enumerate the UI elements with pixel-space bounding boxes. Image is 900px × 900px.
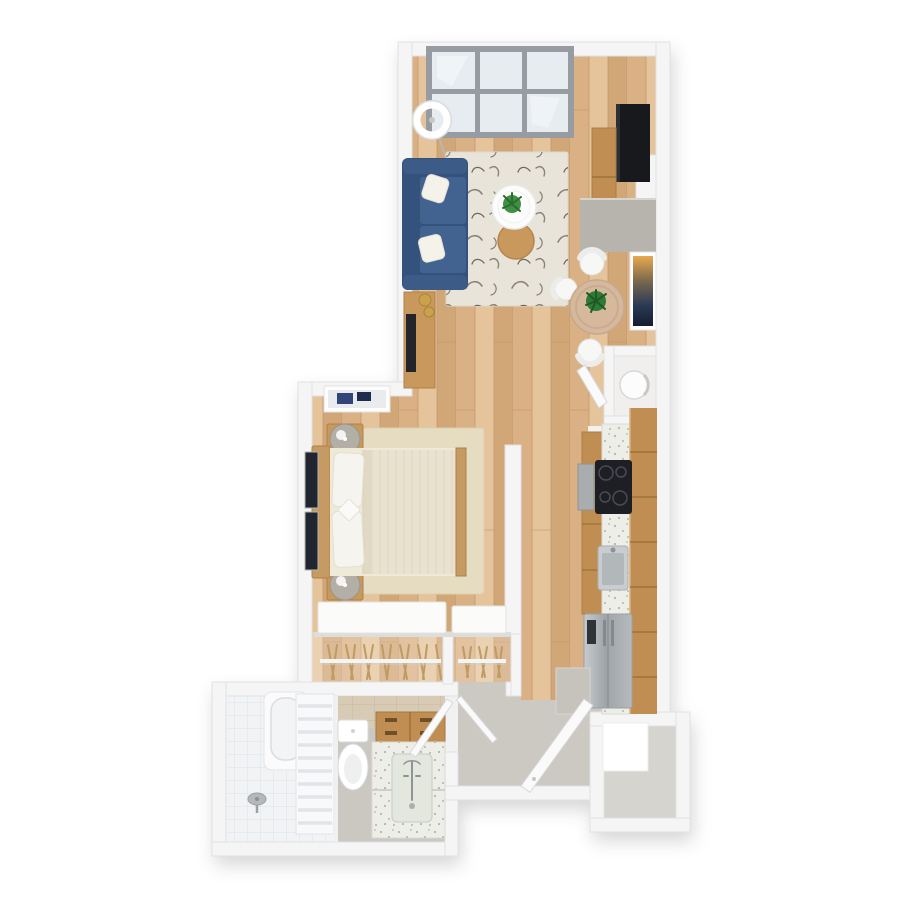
wall-utility-left	[604, 346, 614, 426]
dining-chair-top	[580, 250, 604, 275]
wall-entry-right	[676, 712, 690, 832]
entry-white-cabinet	[603, 723, 648, 771]
toilet	[338, 720, 368, 790]
abstract-wall-art	[630, 252, 656, 330]
vanity-handle-3	[385, 731, 397, 735]
closet-sliding-door-right	[452, 606, 506, 633]
wall-bathroom-east	[445, 752, 458, 856]
entry-door-handle	[532, 777, 536, 781]
oven	[578, 464, 594, 510]
sofa-arm-bottom	[403, 275, 467, 290]
fridge	[584, 614, 632, 708]
wall-tv	[616, 104, 650, 182]
sofa-backrest	[404, 162, 422, 286]
lamp-bulb	[429, 117, 435, 123]
double-bed	[312, 446, 466, 578]
bed-blanket	[362, 450, 456, 574]
wall-bathroom-west	[212, 682, 226, 856]
hall-door-gap-floor	[458, 682, 506, 696]
tall-wood-cabinets	[630, 408, 657, 714]
fridge-handle-1	[603, 620, 606, 646]
slatted-panel	[296, 694, 334, 834]
dining-chair-bottom	[578, 339, 602, 364]
wall-mid-horizontal	[212, 682, 458, 696]
sofa-arm-top	[403, 159, 467, 174]
wall-right	[656, 42, 670, 712]
bedroom-wall-art	[324, 386, 390, 412]
sink-faucet	[611, 548, 616, 553]
console-decor-dark	[406, 314, 416, 372]
media-console	[404, 292, 435, 388]
gray-half-wall	[580, 198, 656, 252]
wall-partition	[505, 445, 521, 634]
water-heater	[620, 371, 648, 399]
closet-sliding-door-left	[318, 602, 446, 633]
wall-closet-divider-east	[511, 632, 521, 696]
toilet-flush-button	[351, 729, 355, 733]
floorplan-canvas	[0, 0, 900, 900]
leaning-art-2	[305, 512, 318, 570]
console-decor-gold-1	[419, 294, 431, 306]
leaning-art-1	[305, 452, 318, 508]
window-mullion-h	[432, 89, 568, 94]
console-decor-gold-2	[424, 307, 434, 317]
bed-footboard	[456, 448, 466, 576]
wall-bathroom-south	[212, 842, 458, 856]
shower-curb	[334, 696, 338, 842]
kitchen-sink	[598, 546, 628, 590]
vanity-handle-2	[420, 718, 432, 722]
wall-closet-mid-divider	[443, 632, 453, 684]
sink-drain	[409, 803, 415, 809]
wall-entry-west	[590, 726, 604, 818]
fridge-control-panel	[587, 620, 596, 644]
wall-entry-bottom	[590, 818, 690, 832]
floorplan-stage	[0, 0, 900, 900]
entry-storage	[603, 723, 648, 771]
vanity-handle-1	[385, 718, 397, 722]
induction-cooktop	[595, 460, 632, 514]
fridge-handle-2	[611, 620, 614, 646]
sofa	[402, 158, 468, 290]
